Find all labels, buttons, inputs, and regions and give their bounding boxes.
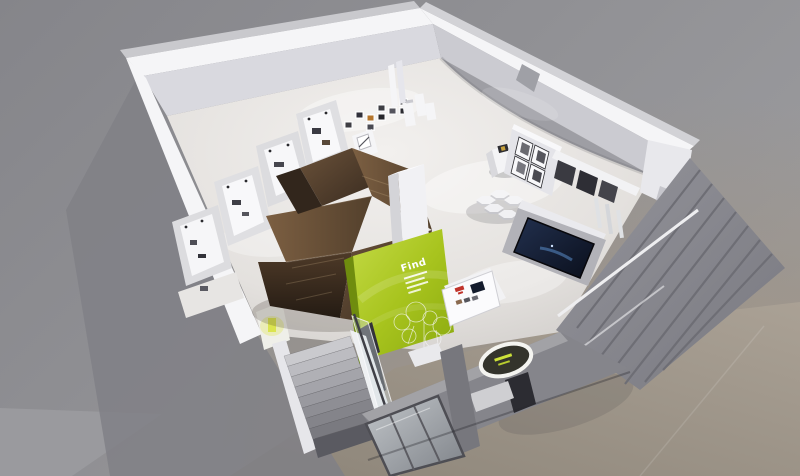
exhibit-item [190, 240, 197, 245]
spotlight [201, 220, 204, 223]
spotlight [308, 118, 311, 121]
exhibit-item [200, 286, 208, 291]
exhibit-item [198, 254, 206, 258]
exhibit-item [242, 212, 249, 216]
exhibit-item [322, 140, 330, 145]
spotlight [245, 180, 248, 183]
exhibit-item [232, 200, 241, 205]
spotlight [185, 226, 188, 229]
spotlight [227, 186, 230, 189]
store-render: Find [0, 0, 800, 476]
render-canvas: Find [0, 0, 800, 476]
spotlight [269, 150, 272, 153]
exhibit-item [274, 162, 284, 167]
spotlight [287, 144, 290, 147]
exhibit-item [312, 128, 321, 134]
spotlight [325, 112, 328, 115]
